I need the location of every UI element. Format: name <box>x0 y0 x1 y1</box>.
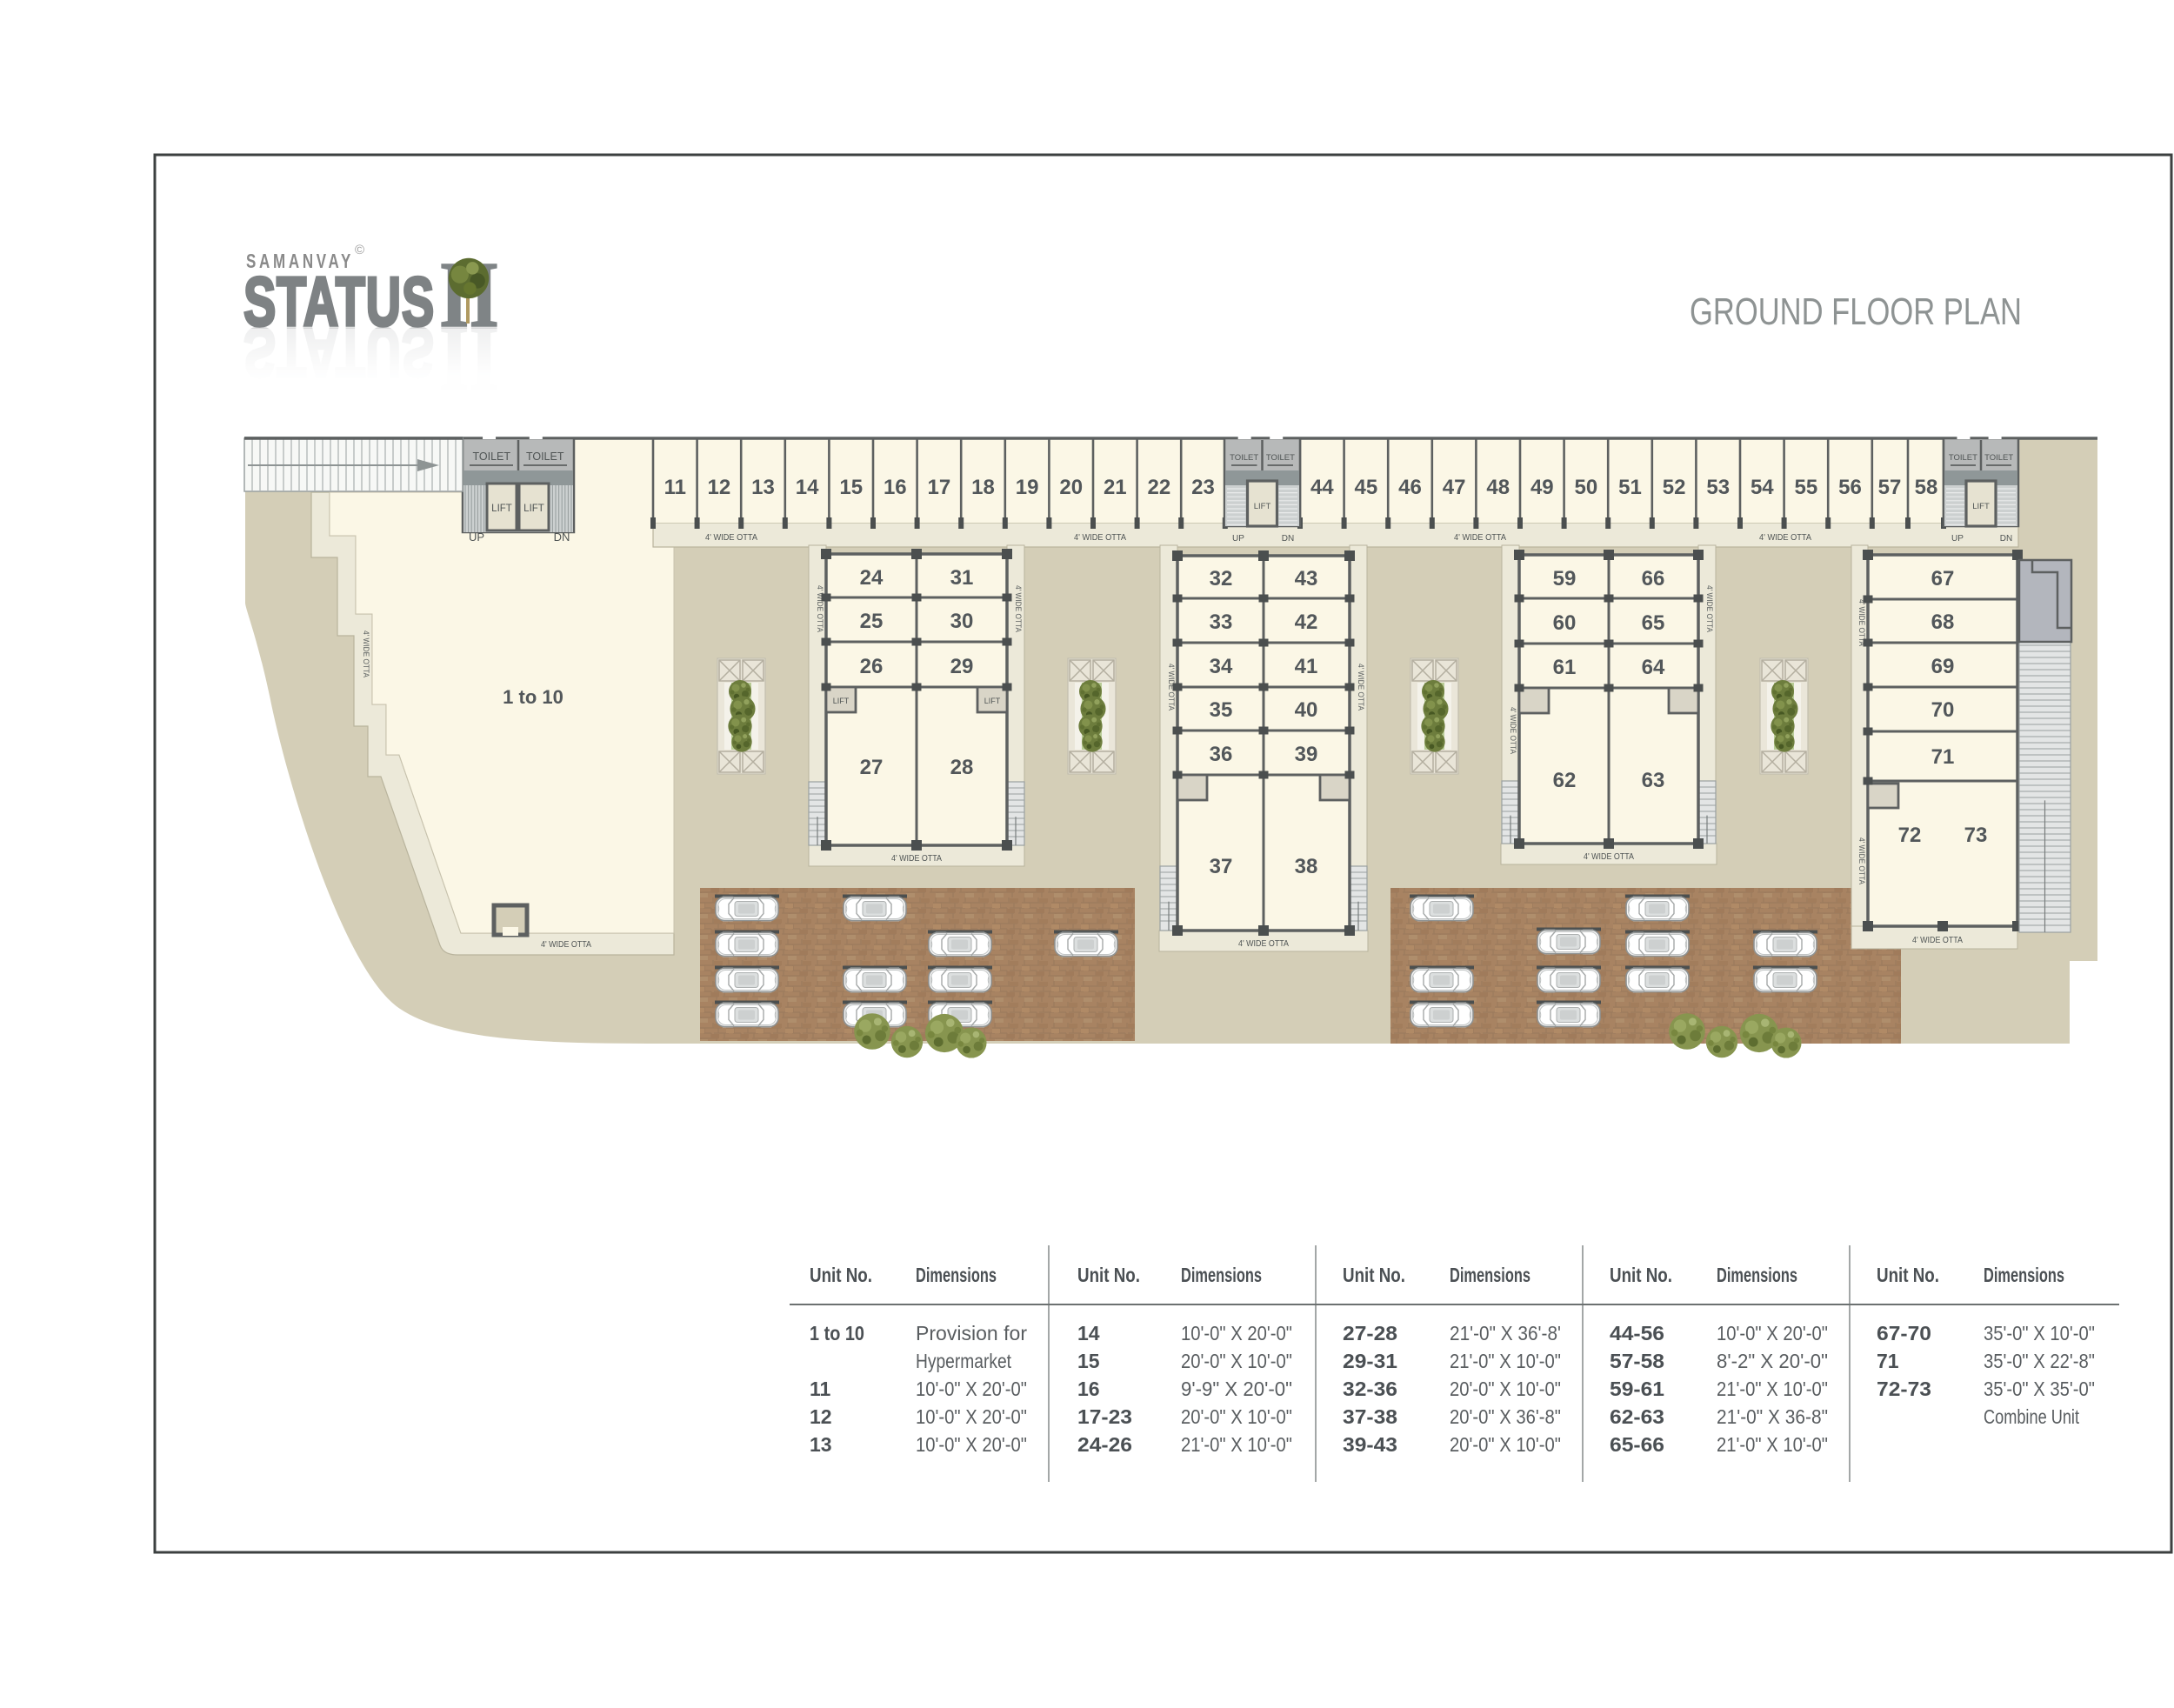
svg-text:1 to 10: 1 to 10 <box>810 1322 864 1344</box>
svg-text:4' WIDE OTTA: 4' WIDE OTTA <box>1508 707 1517 755</box>
svg-text:70: 70 <box>1931 698 1955 722</box>
svg-text:49: 49 <box>1530 476 1554 499</box>
svg-text:35'-0" X 35'-0": 35'-0" X 35'-0" <box>1984 1378 2095 1400</box>
svg-text:DN: DN <box>1282 534 1294 544</box>
svg-text:59-61: 59-61 <box>1610 1378 1664 1400</box>
svg-text:14: 14 <box>1077 1322 1100 1344</box>
svg-text:55: 55 <box>1795 476 1818 499</box>
svg-text:21'-0" X 36'-8': 21'-0" X 36'-8' <box>1450 1322 1561 1344</box>
svg-text:4' WIDE OTTA: 4' WIDE OTTA <box>1238 939 1289 949</box>
svg-text:TOILET: TOILET <box>1230 453 1258 463</box>
svg-text:LIFT: LIFT <box>833 697 850 705</box>
svg-text:63: 63 <box>1642 769 1665 792</box>
svg-text:Dimensions: Dimensions <box>1181 1264 1262 1286</box>
svg-text:50: 50 <box>1575 476 1598 499</box>
svg-text:Dimensions: Dimensions <box>1984 1264 2064 1286</box>
svg-text:4' WIDE OTTA: 4' WIDE OTTA <box>541 940 591 950</box>
svg-text:DN: DN <box>2000 534 2012 544</box>
svg-text:Unit No.: Unit No. <box>1077 1264 1140 1286</box>
svg-text:47: 47 <box>1443 476 1466 499</box>
svg-text:20'-0" X 10'-0": 20'-0" X 10'-0" <box>1450 1378 1561 1400</box>
svg-text:69: 69 <box>1931 655 1955 678</box>
svg-text:LIFT: LIFT <box>1972 502 1990 511</box>
svg-text:41: 41 <box>1295 655 1318 678</box>
svg-text:39: 39 <box>1295 743 1318 766</box>
svg-text:4' WIDE OTTA: 4' WIDE OTTA <box>1704 585 1714 633</box>
svg-text:4' WIDE OTTA: 4' WIDE OTTA <box>1454 532 1506 543</box>
svg-text:TOILET: TOILET <box>473 450 511 463</box>
svg-text:59: 59 <box>1553 567 1577 590</box>
svg-text:66: 66 <box>1642 567 1665 590</box>
svg-text:LIFT: LIFT <box>491 504 512 514</box>
svg-text:18: 18 <box>971 476 995 499</box>
svg-text:TOILET: TOILET <box>1949 453 1977 463</box>
svg-text:71: 71 <box>1877 1350 1899 1372</box>
svg-text:TOILET: TOILET <box>1266 453 1295 463</box>
svg-text:27: 27 <box>860 756 884 779</box>
svg-text:4' WIDE OTTA: 4' WIDE OTTA <box>1356 664 1365 711</box>
svg-text:42: 42 <box>1295 610 1318 634</box>
svg-text:62: 62 <box>1553 769 1577 792</box>
svg-text:30: 30 <box>950 610 974 633</box>
svg-text:UP: UP <box>1232 534 1244 544</box>
svg-text:62-63: 62-63 <box>1610 1405 1664 1428</box>
svg-text:Hypermarket: Hypermarket <box>916 1350 1011 1372</box>
svg-text:16: 16 <box>884 476 907 499</box>
svg-text:Provision for: Provision for <box>916 1322 1027 1344</box>
svg-text:26: 26 <box>860 655 884 678</box>
svg-text:Dimensions: Dimensions <box>916 1264 997 1286</box>
svg-text:44-56: 44-56 <box>1610 1322 1664 1344</box>
svg-text:22: 22 <box>1148 476 1171 499</box>
svg-text:Unit No.: Unit No. <box>1877 1264 1939 1286</box>
svg-text:64: 64 <box>1642 656 1665 679</box>
svg-text:65-66: 65-66 <box>1610 1433 1664 1456</box>
svg-text:GROUND FLOOR PLAN: GROUND FLOOR PLAN <box>1690 290 2022 333</box>
svg-text:10'-0" X 20'-0": 10'-0" X 20'-0" <box>916 1378 1027 1400</box>
svg-text:29: 29 <box>950 655 974 678</box>
svg-text:15: 15 <box>1077 1350 1100 1372</box>
svg-text:38: 38 <box>1295 855 1318 878</box>
svg-text:9'-9" X 20'-0": 9'-9" X 20'-0" <box>1181 1378 1292 1400</box>
svg-text:34: 34 <box>1210 655 1233 678</box>
svg-text:10'-0" X 20'-0": 10'-0" X 20'-0" <box>1181 1322 1292 1344</box>
svg-text:29-31: 29-31 <box>1343 1350 1397 1372</box>
svg-text:15: 15 <box>839 476 863 499</box>
svg-text:16: 16 <box>1077 1378 1100 1400</box>
svg-text:23: 23 <box>1191 476 1215 499</box>
svg-text:72-73: 72-73 <box>1877 1378 1931 1400</box>
svg-text:21: 21 <box>1104 476 1127 499</box>
svg-text:56: 56 <box>1838 476 1862 499</box>
svg-text:Unit No.: Unit No. <box>810 1264 872 1286</box>
svg-text:17: 17 <box>928 476 951 499</box>
svg-text:4' WIDE OTTA: 4' WIDE OTTA <box>891 854 942 864</box>
svg-text:21'-0" X 36-8": 21'-0" X 36-8" <box>1717 1405 1828 1428</box>
svg-text:27-28: 27-28 <box>1343 1322 1397 1344</box>
svg-text:21'-0" X 10'-0": 21'-0" X 10'-0" <box>1717 1433 1828 1456</box>
svg-text:Dimensions: Dimensions <box>1450 1264 1530 1286</box>
svg-text:4' WIDE OTTA: 4' WIDE OTTA <box>1857 837 1866 885</box>
svg-text:12: 12 <box>810 1405 832 1428</box>
svg-text:46: 46 <box>1398 476 1422 499</box>
svg-text:24-26: 24-26 <box>1077 1433 1132 1456</box>
svg-text:72: 72 <box>1898 824 1922 847</box>
svg-text:10'-0" X 20'-0": 10'-0" X 20'-0" <box>916 1405 1027 1428</box>
svg-text:10'-0" X 20'-0": 10'-0" X 20'-0" <box>1717 1322 1828 1344</box>
svg-text:UP: UP <box>469 530 484 544</box>
svg-text:32-36: 32-36 <box>1343 1378 1397 1400</box>
svg-text:4' WIDE OTTA: 4' WIDE OTTA <box>815 585 824 633</box>
svg-text:35'-0" X 10'-0": 35'-0" X 10'-0" <box>1984 1322 2095 1344</box>
svg-text:43: 43 <box>1295 567 1318 590</box>
svg-text:40: 40 <box>1295 698 1318 722</box>
svg-text:UP: UP <box>1951 534 1964 544</box>
svg-text:TOILET: TOILET <box>526 450 564 463</box>
svg-text:4' WIDE OTTA: 4' WIDE OTTA <box>361 630 370 678</box>
svg-text:14: 14 <box>796 476 819 499</box>
svg-text:Unit No.: Unit No. <box>1343 1264 1405 1286</box>
svg-text:20'-0" X 36'-8": 20'-0" X 36'-8" <box>1450 1405 1561 1428</box>
svg-text:TOILET: TOILET <box>1984 453 2013 463</box>
svg-text:20'-0" X 10'-0": 20'-0" X 10'-0" <box>1181 1350 1292 1372</box>
svg-text:57: 57 <box>1878 476 1902 499</box>
svg-text:11: 11 <box>664 476 686 499</box>
svg-text:73: 73 <box>1964 824 1988 847</box>
svg-text:11: 11 <box>810 1378 831 1400</box>
svg-text:57-58: 57-58 <box>1610 1350 1664 1372</box>
svg-text:51: 51 <box>1618 476 1642 499</box>
svg-text:4' WIDE OTTA: 4' WIDE OTTA <box>705 532 757 543</box>
svg-text:35: 35 <box>1210 698 1233 722</box>
svg-text:20'-0" X 10'-0": 20'-0" X 10'-0" <box>1181 1405 1292 1428</box>
svg-text:36: 36 <box>1210 743 1233 766</box>
svg-text:17-23: 17-23 <box>1077 1405 1132 1428</box>
svg-text:25: 25 <box>860 610 884 633</box>
svg-text:53: 53 <box>1706 476 1730 499</box>
svg-text:67: 67 <box>1931 567 1955 590</box>
svg-text:12: 12 <box>708 476 731 499</box>
svg-text:LIFT: LIFT <box>984 697 1001 705</box>
svg-text:35'-0" X 22'-8": 35'-0" X 22'-8" <box>1984 1350 2095 1372</box>
svg-text:71: 71 <box>1931 745 1955 769</box>
svg-text:Dimensions: Dimensions <box>1717 1264 1797 1286</box>
svg-text:8'-2" X 20'-0": 8'-2" X 20'-0" <box>1717 1350 1828 1372</box>
svg-text:4' WIDE OTTA: 4' WIDE OTTA <box>1759 532 1811 543</box>
svg-text:13: 13 <box>751 476 775 499</box>
svg-text:28: 28 <box>950 756 974 779</box>
svg-text:44: 44 <box>1310 476 1334 499</box>
svg-text:37: 37 <box>1210 855 1233 878</box>
svg-text:39-43: 39-43 <box>1343 1433 1397 1456</box>
svg-text:13: 13 <box>810 1433 832 1456</box>
svg-text:1 to 10: 1 to 10 <box>503 686 564 708</box>
svg-text:33: 33 <box>1210 610 1233 634</box>
svg-text:48: 48 <box>1486 476 1510 499</box>
svg-text:21'-0" X 10'-0": 21'-0" X 10'-0" <box>1450 1350 1561 1372</box>
svg-text:21'-0" X 10'-0": 21'-0" X 10'-0" <box>1717 1378 1828 1400</box>
svg-text:DN: DN <box>554 530 570 544</box>
svg-text:©: © <box>355 243 364 257</box>
svg-text:4' WIDE OTTA: 4' WIDE OTTA <box>1912 936 1963 945</box>
svg-text:20: 20 <box>1059 476 1083 499</box>
svg-text:31: 31 <box>950 566 974 590</box>
svg-text:61: 61 <box>1553 656 1577 679</box>
svg-text:LIFT: LIFT <box>1254 502 1271 511</box>
svg-text:20'-0" X 10'-0": 20'-0" X 10'-0" <box>1450 1433 1561 1456</box>
svg-text:68: 68 <box>1931 610 1955 634</box>
svg-text:52: 52 <box>1663 476 1686 499</box>
svg-text:37-38: 37-38 <box>1343 1405 1397 1428</box>
svg-text:58: 58 <box>1915 476 1938 499</box>
svg-text:65: 65 <box>1642 611 1665 635</box>
svg-text:54: 54 <box>1751 476 1774 499</box>
svg-text:4' WIDE OTTA: 4' WIDE OTTA <box>1074 532 1126 543</box>
svg-text:4' WIDE OTTA: 4' WIDE OTTA <box>1584 852 1634 862</box>
svg-text:10'-0" X 20'-0": 10'-0" X 20'-0" <box>916 1433 1027 1456</box>
svg-text:19: 19 <box>1016 476 1039 499</box>
svg-text:45: 45 <box>1355 476 1378 499</box>
svg-text:32: 32 <box>1210 567 1233 590</box>
svg-text:LIFT: LIFT <box>523 504 544 514</box>
svg-text:Combine Unit: Combine Unit <box>1984 1405 2079 1428</box>
svg-text:Unit No.: Unit No. <box>1610 1264 1672 1286</box>
svg-text:60: 60 <box>1553 611 1577 635</box>
svg-text:67-70: 67-70 <box>1877 1322 1931 1344</box>
svg-text:21'-0" X 10'-0": 21'-0" X 10'-0" <box>1181 1433 1292 1456</box>
svg-text:4' WIDE OTTA: 4' WIDE OTTA <box>1013 585 1023 633</box>
svg-text:24: 24 <box>860 566 884 590</box>
